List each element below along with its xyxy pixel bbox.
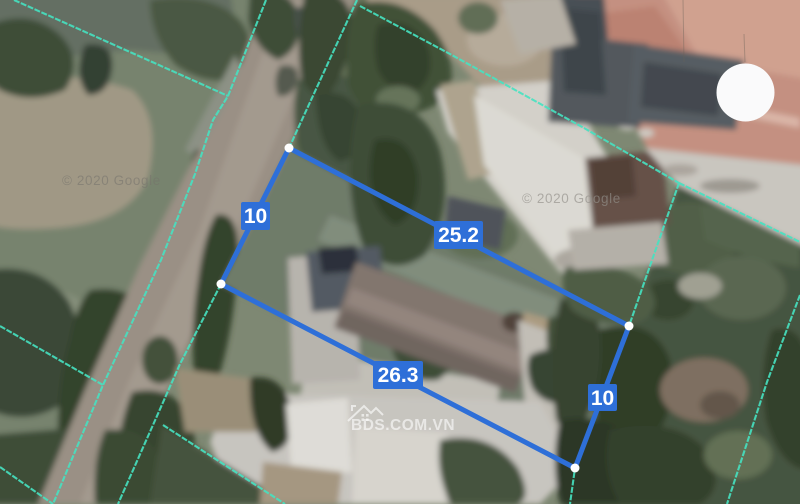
svg-text:25.2: 25.2 [438,224,479,247]
svg-text:© 2020 Google: © 2020 Google [522,191,621,206]
svg-text:© 2020 Google: © 2020 Google [62,173,161,188]
svg-text:10: 10 [244,205,267,228]
svg-text:10: 10 [591,387,614,410]
svg-text:BDS.COM.VN: BDS.COM.VN [351,417,455,434]
svg-text:26.3: 26.3 [378,364,419,387]
